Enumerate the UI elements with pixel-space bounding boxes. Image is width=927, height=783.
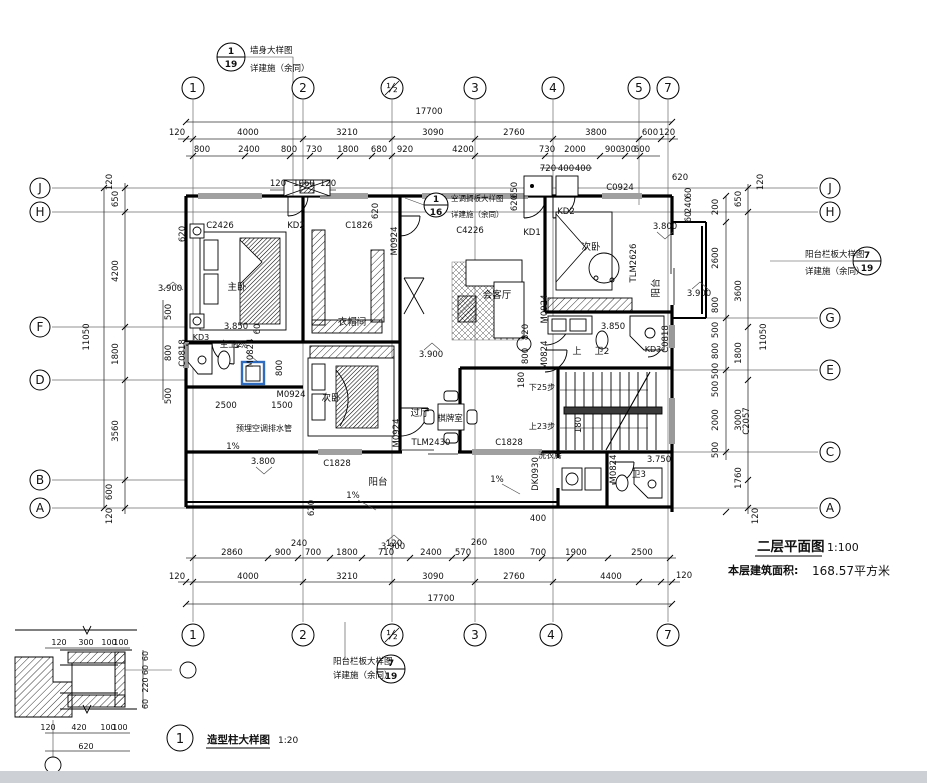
grid-bubble-G: G <box>820 308 840 328</box>
window-bottom-strip <box>0 771 927 783</box>
dim: 600 <box>642 128 658 138</box>
dim: 120 <box>105 174 115 190</box>
svg-text:5: 5 <box>635 81 643 95</box>
dim: 800 <box>711 343 721 359</box>
area-value: 168.57平方米 <box>812 563 890 578</box>
grid-bubble-2: 2 <box>292 77 314 99</box>
slope: 1% <box>490 475 504 485</box>
dim: 3560 <box>111 420 121 442</box>
dim: 120 <box>270 179 286 189</box>
dim: 180 <box>574 417 584 433</box>
svg-text:C: C <box>826 445 834 459</box>
dim: 500 <box>711 322 721 338</box>
opening-DK0930 <box>555 458 561 488</box>
opening: C4226 <box>456 226 484 236</box>
area-label: 本层建筑面积: <box>728 563 798 577</box>
dim: 11050 <box>82 323 92 350</box>
opening: KD3 <box>645 345 662 354</box>
dim: 800 <box>275 360 285 376</box>
level: 3.900 <box>687 289 711 299</box>
master-bed <box>190 224 286 330</box>
callout-text: 详建施（余同） <box>451 209 504 219</box>
room: 会客厅 <box>483 289 512 301</box>
dim: 400 <box>575 164 591 174</box>
dim: C2057 <box>742 407 752 435</box>
opening: M0924 <box>390 227 400 256</box>
dim: 120 <box>751 508 761 524</box>
dim: 260 <box>471 538 487 548</box>
dim: 1800 <box>336 548 358 558</box>
svg-text:H: H <box>35 205 44 219</box>
callout-text: 详建施（余同） <box>805 266 865 277</box>
grid-bubble-B: B <box>30 470 50 490</box>
opening: KD1 <box>523 228 541 238</box>
dim: 1060 <box>293 179 315 189</box>
dim: 1800 <box>493 548 515 558</box>
opening: DK0930 <box>531 457 541 491</box>
level: 3.850 <box>601 322 625 332</box>
grid-bubble-F: F <box>30 317 50 337</box>
grid-bubble-1: 1 <box>182 624 204 646</box>
stair-note: 下25步 <box>529 383 555 392</box>
opening: C1828 <box>323 459 351 469</box>
opening: KD2 <box>287 221 305 231</box>
level: 3.750 <box>647 455 671 465</box>
grid-bubble-3: 3 <box>464 624 486 646</box>
room: 卫2 <box>595 347 610 357</box>
opening: M0924 <box>540 295 550 324</box>
callout-text: 阳台栏板大样图 <box>333 656 393 667</box>
grid-bubbles: 12½345712½347JHFDBAJHGECA <box>30 77 840 646</box>
opening: C0818 <box>661 325 671 353</box>
dim: 17700 <box>415 107 442 117</box>
dim: 120 <box>320 179 336 189</box>
dim: 120 <box>756 174 766 190</box>
dim: 4200 <box>111 260 121 282</box>
callout-text: 空调搁板大样图 <box>451 193 504 203</box>
level: 3.850 <box>224 322 248 332</box>
detail-dim: 300 <box>78 638 93 647</box>
svg-text:J: J <box>37 181 42 195</box>
dim: 620 <box>510 195 520 211</box>
opening: KD2 <box>557 207 575 217</box>
dim: 3210 <box>336 572 358 582</box>
detail-dim: 120 <box>51 638 66 647</box>
svg-text:D: D <box>35 373 44 387</box>
dim: 3090 <box>422 128 444 138</box>
opening: M0824 <box>246 339 256 368</box>
grid-bubble-1: 1 <box>182 77 204 99</box>
dim: 4200 <box>452 145 474 155</box>
dim: 500 <box>711 442 721 458</box>
sliding-door-TLM2430 <box>402 448 458 456</box>
column-detail-drawing <box>15 626 196 773</box>
dim: 240 <box>684 197 694 213</box>
dim: 60 <box>684 188 694 199</box>
plan-title: 二层平面图 <box>757 539 825 555</box>
opening: C2426 <box>206 221 234 231</box>
staircase <box>560 372 662 450</box>
second-bedroom-furniture <box>548 212 632 311</box>
dim: 60 <box>253 324 263 335</box>
opening: M0924 <box>392 419 402 448</box>
dim: 4000 <box>237 128 259 138</box>
dim: 500 <box>711 381 721 397</box>
detail-title: 造型柱大样图 1:20 <box>206 733 298 748</box>
grid-bubble-J: J <box>820 178 840 198</box>
grid-bubble-A: A <box>820 498 840 518</box>
grid-bubble-J: J <box>30 178 50 198</box>
dim: 2500 <box>631 548 653 558</box>
dim: 500 <box>164 304 174 320</box>
opening: C1826 <box>345 221 373 231</box>
dim: 620 <box>371 203 381 219</box>
room: 次卧 <box>321 392 341 404</box>
dim: 1900 <box>565 548 587 558</box>
detail-dim: 420 <box>71 723 86 732</box>
opening: TLM2626 <box>629 244 639 284</box>
grid-bubble-½: ½ <box>381 624 403 646</box>
dim: 620 <box>672 173 688 183</box>
dim: 120 <box>659 128 675 138</box>
svg-text:7: 7 <box>664 628 672 642</box>
grid-bubble-C: C <box>820 442 840 462</box>
svg-text:2: 2 <box>299 628 307 642</box>
dim: 60 <box>684 212 694 223</box>
svg-text:1: 1 <box>433 195 439 205</box>
dim: 820 <box>521 324 531 340</box>
cloakroom-wardrobes <box>310 230 394 358</box>
svg-text:E: E <box>826 363 834 377</box>
slope: 1% <box>226 442 240 452</box>
detail-dim: 100 <box>113 638 128 647</box>
dim: 1800 <box>337 145 359 155</box>
level: 3.800 <box>653 222 677 232</box>
dim: 620 <box>178 226 188 242</box>
wall-detail-callout: 119 <box>217 43 245 71</box>
opening: M0924 <box>277 390 306 400</box>
room: 主卫2 <box>220 339 242 350</box>
opening: M0824 <box>609 455 619 484</box>
plan-scale: 1:100 <box>827 541 859 554</box>
opening: M0824 <box>540 341 550 370</box>
svg-text:B: B <box>36 473 44 487</box>
dim: 400 <box>530 514 546 524</box>
opening: TLM2430 <box>411 438 451 448</box>
detail-dim: 220 <box>141 677 150 692</box>
svg-text:4: 4 <box>547 628 555 642</box>
grid-bubble-½: ½ <box>381 77 403 99</box>
room: 过厅 <box>410 407 430 419</box>
dim: 620 <box>307 500 317 516</box>
dim: 2760 <box>503 572 525 582</box>
svg-text:1: 1 <box>176 732 184 747</box>
detail-dim: 620 <box>78 742 93 751</box>
grid-bubble-E: E <box>820 360 840 380</box>
dim: 120 <box>169 572 185 582</box>
dim: 2760 <box>503 128 525 138</box>
grid-bubble-A: A <box>30 498 50 518</box>
window-C1828-bottom-right <box>472 449 542 455</box>
dim: 680 <box>371 145 387 155</box>
dim: 4400 <box>600 572 622 582</box>
grid-bubble-5: 5 <box>628 77 650 99</box>
svg-text:19: 19 <box>225 60 238 70</box>
dim: 1760 <box>734 467 744 489</box>
svg-text:3: 3 <box>471 81 479 95</box>
room: 上 <box>572 346 581 357</box>
dim: 570 <box>455 548 471 558</box>
level: 3.900 <box>158 284 182 294</box>
detail-dim: 60 <box>141 699 150 709</box>
grid-bubble-7: 7 <box>657 77 679 99</box>
room: 卫3 <box>632 470 646 480</box>
note: 预埋空调排水管 <box>236 423 292 433</box>
svg-text:1: 1 <box>228 47 234 57</box>
room: 阳台 <box>368 476 387 488</box>
svg-text:1: 1 <box>189 628 197 642</box>
room: 主卧 <box>227 281 247 293</box>
callout-text: 墙身大样图 <box>250 45 293 56</box>
cad-drawing-canvas: 二层平面图 1:100 本层建筑面积: 168.57平方米 造型柱大样图 1:2… <box>0 0 927 783</box>
dim: 200 <box>711 199 721 215</box>
svg-text:A: A <box>36 501 45 515</box>
dim: 17700 <box>427 594 454 604</box>
dim: 400 <box>558 164 574 174</box>
dim: 800 <box>281 145 297 155</box>
svg-text:A: A <box>826 501 835 515</box>
dim: 3600 <box>734 280 744 302</box>
dim: 3210 <box>336 128 358 138</box>
callout-text: 详建施（余同） <box>250 63 310 74</box>
laundry-fixtures <box>562 468 601 490</box>
dim: 900 <box>605 145 621 155</box>
dim: 2600 <box>711 247 721 269</box>
callout-text: 阳台栏板大样图 <box>805 249 865 260</box>
floor-plan-svg: 二层平面图 1:100 本层建筑面积: 168.57平方米 造型柱大样图 1:2… <box>0 0 927 783</box>
ac-shelf-detail-callout: 116 <box>424 193 448 218</box>
dim: 2000 <box>711 409 721 431</box>
dim: 11050 <box>759 323 769 350</box>
dim: 800 <box>521 348 531 364</box>
detail-title-text: 造型柱大样图 <box>207 733 270 746</box>
dim: 730 <box>306 145 322 155</box>
dim: 500 <box>164 388 174 404</box>
svg-text:2: 2 <box>299 81 307 95</box>
dim: 2400 <box>238 145 260 155</box>
grid-bubble-4: 4 <box>542 77 564 99</box>
svg-text:J: J <box>827 181 832 195</box>
opening: C0924 <box>606 183 634 193</box>
dim: 500 <box>711 363 721 379</box>
dim: 800 <box>711 297 721 313</box>
dim: 3090 <box>422 572 444 582</box>
level: 3.900 <box>419 350 443 360</box>
dim: 920 <box>397 145 413 155</box>
detail-dim: 60 <box>141 665 150 675</box>
dim: 180 <box>517 372 527 388</box>
svg-text:16: 16 <box>430 208 443 218</box>
svg-text:3: 3 <box>471 628 479 642</box>
grid-bubble-7: 7 <box>657 624 679 646</box>
level: 3.800 <box>251 457 275 467</box>
grid-bubble-4: 4 <box>540 624 562 646</box>
grid-bubble-D: D <box>30 370 50 390</box>
room: 衣帽间 <box>338 316 367 328</box>
dim: 650 <box>734 191 744 207</box>
grid-bubble-2: 2 <box>292 624 314 646</box>
dim: 800 <box>164 345 174 361</box>
detail-dim: 60 <box>141 651 150 661</box>
dim: 2860 <box>221 548 243 558</box>
dim: 3800 <box>585 128 607 138</box>
dim: 900 <box>275 548 291 558</box>
svg-text:4: 4 <box>549 81 557 95</box>
slope: 1% <box>346 491 360 501</box>
dim: 4000 <box>237 572 259 582</box>
grid-bubble-3: 3 <box>464 77 486 99</box>
svg-text:F: F <box>37 320 44 334</box>
dim: 720 <box>540 164 556 174</box>
stair-note: 上23步 <box>529 422 555 431</box>
column-detail-callout: 1 <box>167 725 193 751</box>
dim: 2400 <box>420 548 442 558</box>
title-block: 二层平面图 1:100 本层建筑面积: 168.57平方米 <box>728 539 890 578</box>
detail-scale: 1:20 <box>278 736 298 746</box>
detail-dim: 120 <box>40 723 55 732</box>
window-C2426 <box>198 193 262 199</box>
room: 次卧 <box>581 241 601 253</box>
dim: 2000 <box>564 145 586 155</box>
sliding-door-TLM2626 <box>669 235 676 305</box>
window-C0924 <box>602 193 642 199</box>
svg-text:H: H <box>825 205 834 219</box>
svg-text:7: 7 <box>664 81 672 95</box>
opening: C0818 <box>178 339 188 367</box>
ac-shelf-right <box>524 176 578 196</box>
dim: 1800 <box>111 343 121 365</box>
dim: 1500 <box>271 401 293 411</box>
svg-text:G: G <box>825 311 834 325</box>
room: 洗衣房 <box>538 450 562 460</box>
callout-text: 详建施（余同） <box>333 670 393 681</box>
opening: KD3 <box>193 333 210 342</box>
dim: 650 <box>111 191 121 207</box>
room: 棋牌室 <box>437 413 463 424</box>
window-C2057 <box>669 398 675 444</box>
detail-dim: 100 <box>112 723 127 732</box>
dim: 800 <box>194 145 210 155</box>
detail-callouts: 1191167197191 <box>167 43 881 751</box>
dim: 120 <box>169 128 185 138</box>
grid-bubble-H: H <box>30 202 50 222</box>
grid-bubble-H: H <box>820 202 840 222</box>
dim: 2500 <box>215 401 237 411</box>
svg-text:7: 7 <box>864 251 870 261</box>
dim: 700 <box>305 548 321 558</box>
window-C1828-bottom-left <box>318 449 362 455</box>
opening: C1828 <box>495 438 523 448</box>
living-sofa-set <box>404 260 531 351</box>
dim: 120 <box>105 508 115 524</box>
dim: 120 <box>676 571 692 581</box>
level: 3.900 <box>381 542 405 552</box>
room: 阳台 <box>650 278 662 297</box>
svg-text:1: 1 <box>189 81 197 95</box>
dim: 1800 <box>734 342 744 364</box>
dim: 600 <box>105 484 115 500</box>
